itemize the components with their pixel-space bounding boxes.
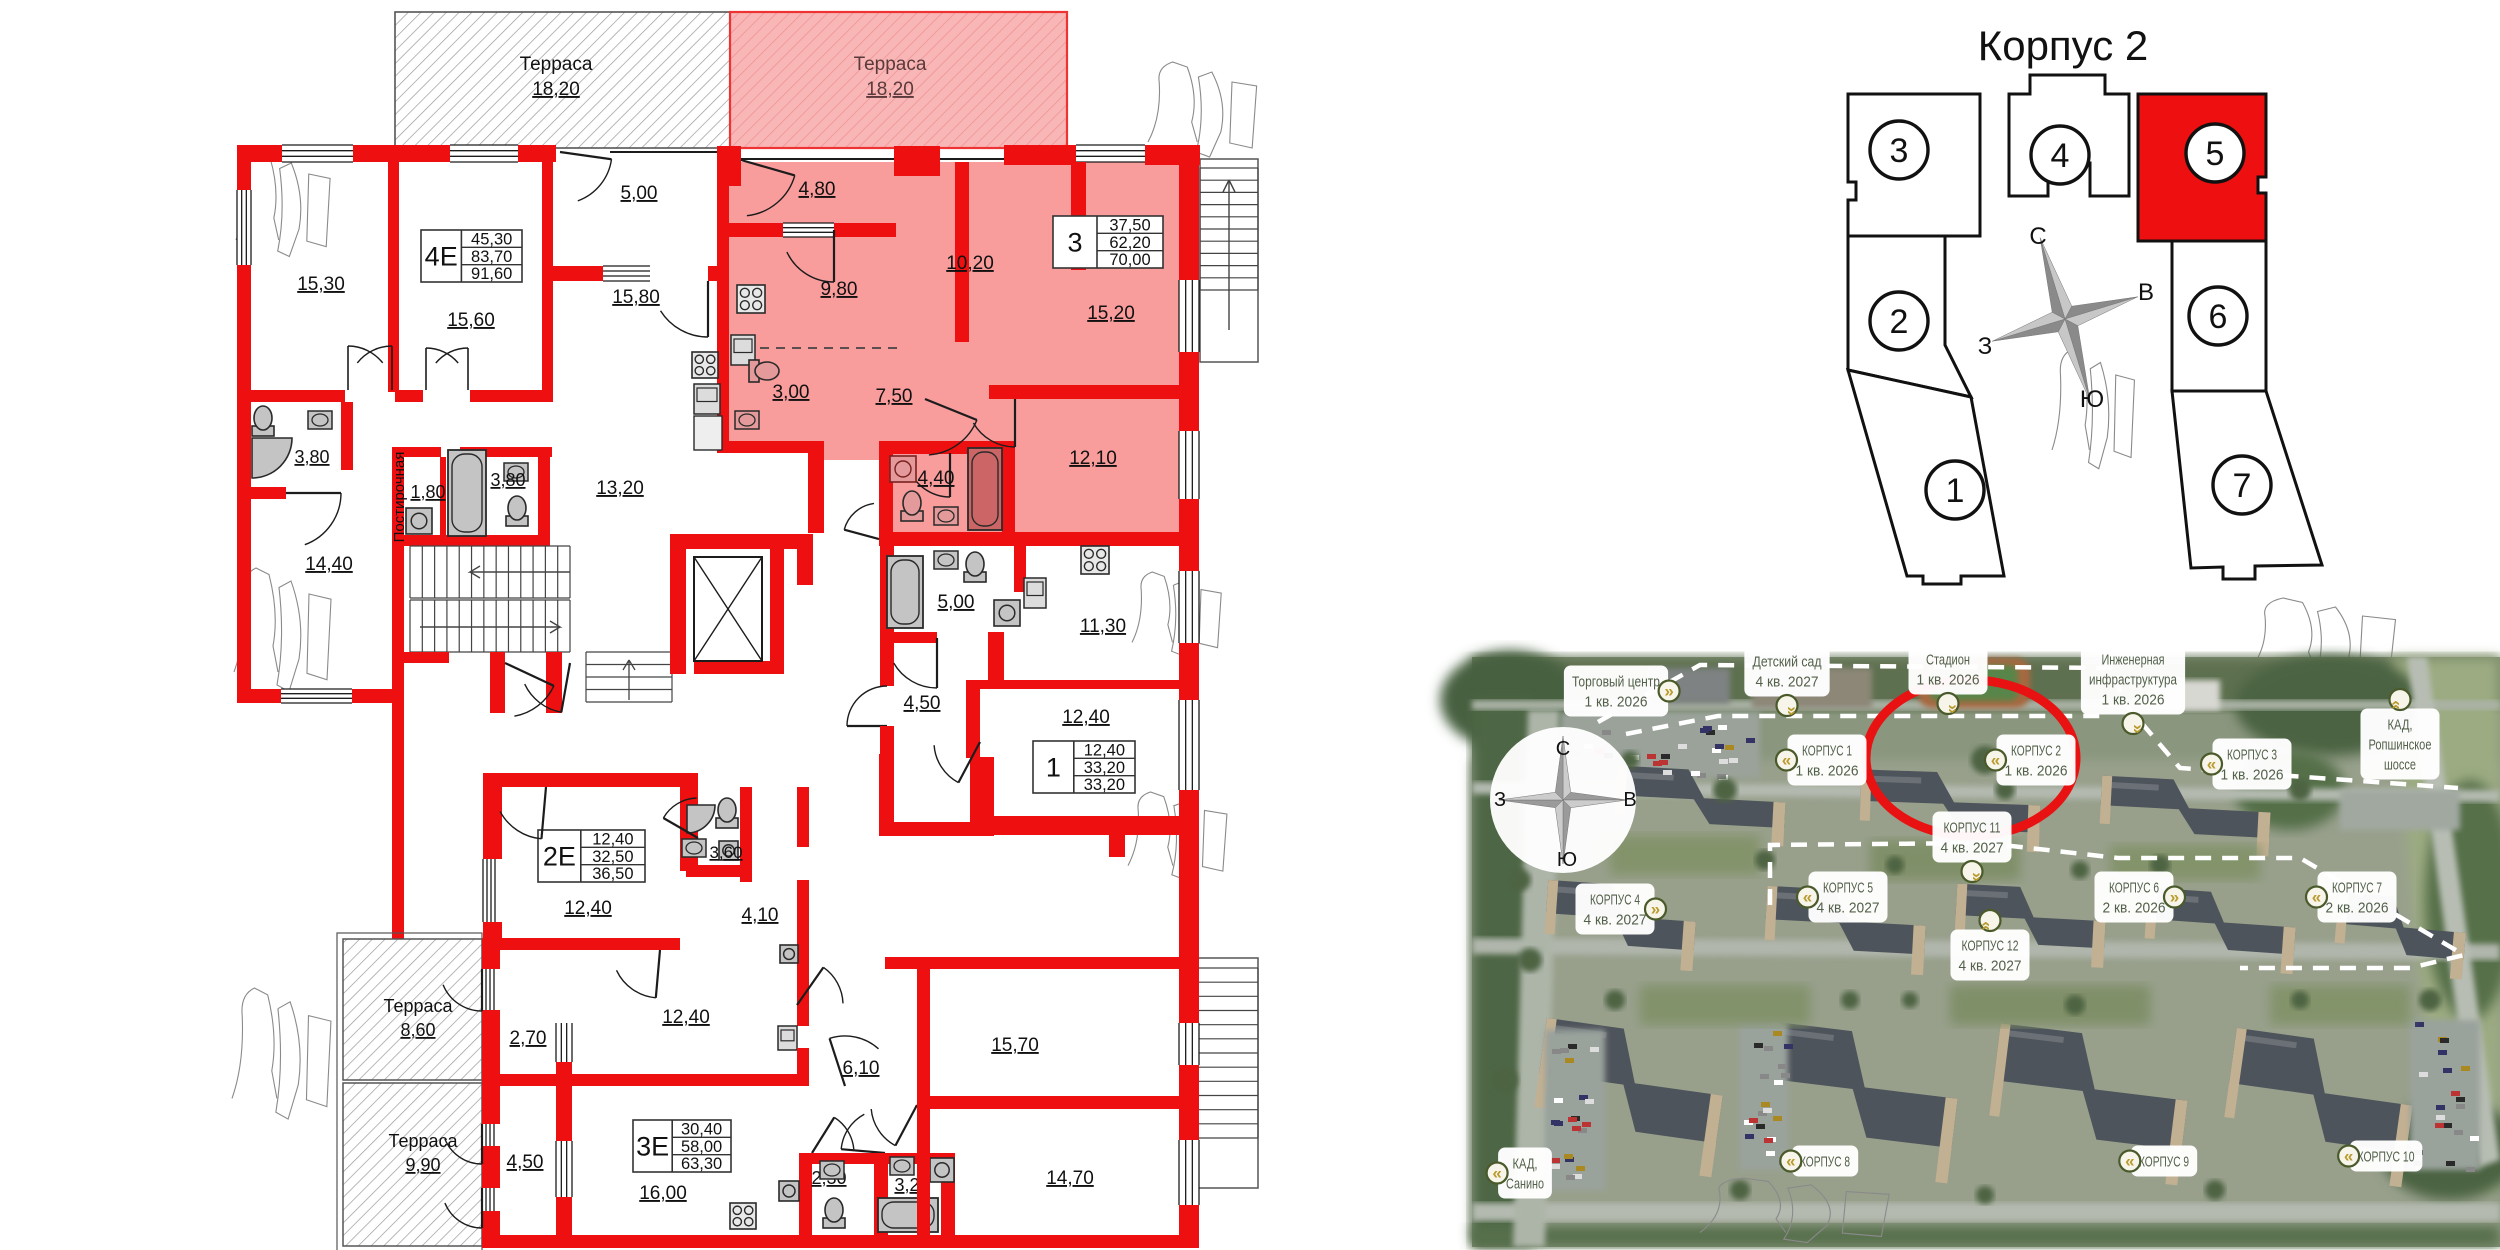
svg-text:Ю: Ю	[2080, 386, 2104, 413]
svg-text:1,80: 1,80	[410, 482, 445, 502]
svg-text:»: »	[2129, 724, 2148, 733]
svg-text:15,20: 15,20	[1087, 303, 1135, 324]
svg-text:»: »	[2385, 700, 2404, 709]
svg-text:»: »	[1664, 682, 1673, 701]
svg-text:4 кв. 2027: 4 кв. 2027	[1756, 674, 1819, 691]
svg-text:«: «	[1782, 751, 1791, 770]
svg-text:14,40: 14,40	[305, 554, 353, 575]
svg-text:КОРПУС 9: КОРПУС 9	[2139, 1154, 2189, 1171]
svg-text:36,50: 36,50	[592, 865, 633, 883]
svg-text:9,90: 9,90	[405, 1155, 440, 1175]
svg-text:Корпус 2: Корпус 2	[1978, 22, 2148, 69]
svg-text:33,20: 33,20	[1084, 776, 1125, 794]
svg-text:инфраструктура: инфраструктура	[2089, 672, 2177, 689]
svg-text:2Е: 2Е	[543, 841, 576, 871]
svg-text:»: »	[1975, 921, 1994, 930]
svg-text:15,60: 15,60	[447, 310, 495, 331]
svg-text:1 кв. 2026: 1 кв. 2026	[2102, 692, 2165, 709]
svg-text:В: В	[2138, 279, 2154, 306]
svg-text:КАД,: КАД,	[1513, 1156, 1538, 1173]
svg-text:«: «	[1786, 1152, 1795, 1171]
svg-text:32,50: 32,50	[592, 848, 633, 866]
svg-text:4 кв. 2027: 4 кв. 2027	[1941, 840, 2004, 857]
svg-text:Терраса: Терраса	[383, 996, 453, 1016]
svg-text:91,60: 91,60	[471, 265, 512, 283]
svg-text:«: «	[2312, 888, 2321, 907]
svg-text:«: «	[2125, 1152, 2134, 1171]
svg-text:«: «	[1492, 1164, 1501, 1183]
svg-text:12,40: 12,40	[564, 898, 612, 919]
svg-text:3: 3	[1890, 132, 1909, 170]
svg-text:КОРПУС 6: КОРПУС 6	[2109, 880, 2159, 897]
svg-text:КОРПУС 11: КОРПУС 11	[1944, 820, 2001, 837]
svg-text:«: «	[1991, 751, 2000, 770]
svg-text:8,60: 8,60	[400, 1020, 435, 1040]
svg-text:2 кв. 2026: 2 кв. 2026	[2326, 900, 2389, 917]
svg-text:2,70: 2,70	[510, 1028, 547, 1049]
svg-text:КОРПУС 12: КОРПУС 12	[1962, 938, 2019, 955]
svg-text:КОРПУС 10: КОРПУС 10	[2358, 1149, 2415, 1166]
svg-text:Ропшинское: Ропшинское	[2369, 737, 2432, 754]
svg-text:4 кв. 2027: 4 кв. 2027	[1959, 958, 2022, 975]
svg-text:С: С	[1556, 738, 1570, 760]
svg-text:11,30: 11,30	[1080, 616, 1126, 637]
svg-text:58,00: 58,00	[681, 1138, 722, 1156]
svg-text:КОРПУС 1: КОРПУС 1	[1802, 743, 1852, 760]
svg-text:9,80: 9,80	[821, 279, 858, 300]
svg-text:63,30: 63,30	[681, 1155, 722, 1173]
svg-text:7: 7	[2233, 467, 2252, 505]
svg-text:12,40: 12,40	[1062, 707, 1110, 728]
svg-text:Санино: Санино	[1506, 1176, 1544, 1193]
svg-text:3: 3	[1067, 227, 1082, 257]
svg-text:1 кв. 2026: 1 кв. 2026	[1585, 694, 1648, 711]
svg-text:14,70: 14,70	[1046, 1168, 1094, 1189]
svg-text:3,60: 3,60	[709, 843, 742, 862]
svg-text:13,20: 13,20	[596, 478, 644, 499]
svg-text:Ю: Ю	[1557, 849, 1577, 871]
svg-text:12,40: 12,40	[592, 830, 633, 848]
svg-text:Терраса: Терраса	[854, 54, 927, 75]
svg-text:Стадион: Стадион	[1926, 652, 1970, 669]
svg-text:КАД,: КАД,	[2388, 717, 2413, 734]
svg-text:«: «	[2344, 1147, 2353, 1166]
svg-text:16,00: 16,00	[639, 1183, 687, 1204]
svg-text:3,80: 3,80	[294, 447, 329, 467]
svg-text:12,10: 12,10	[1069, 448, 1117, 469]
svg-text:4,80: 4,80	[799, 179, 836, 200]
svg-text:45,30: 45,30	[471, 230, 512, 248]
svg-text:12,40: 12,40	[1084, 741, 1125, 759]
svg-text:1: 1	[1046, 752, 1061, 782]
svg-text:6: 6	[2209, 298, 2228, 336]
svg-text:Торговый центр: Торговый центр	[1572, 674, 1660, 691]
svg-text:З: З	[1978, 333, 1993, 360]
svg-text:Терраса: Терраса	[520, 54, 593, 75]
svg-text:6,10: 6,10	[843, 1058, 880, 1079]
svg-text:1 кв. 2026: 1 кв. 2026	[2005, 763, 2068, 780]
svg-text:2: 2	[1890, 303, 1909, 341]
svg-text:18,20: 18,20	[532, 79, 580, 100]
svg-text:33,20: 33,20	[1084, 759, 1125, 777]
svg-text:1 кв. 2026: 1 кв. 2026	[1796, 763, 1859, 780]
svg-text:КОРПУС 5: КОРПУС 5	[1823, 880, 1873, 897]
svg-text:7,50: 7,50	[876, 386, 913, 407]
svg-text:»: »	[2170, 888, 2179, 907]
svg-text:КОРПУС 4: КОРПУС 4	[1590, 892, 1640, 909]
svg-text:»: »	[1968, 872, 1987, 881]
svg-text:4,10: 4,10	[742, 905, 779, 926]
svg-text:3,80: 3,80	[490, 470, 525, 490]
svg-text:3,00: 3,00	[773, 382, 810, 403]
svg-text:шоссе: шоссе	[2384, 757, 2416, 774]
svg-text:4,50: 4,50	[507, 1152, 544, 1173]
svg-text:КОРПУС 8: КОРПУС 8	[1800, 1154, 1850, 1171]
svg-text:»: »	[1783, 706, 1802, 715]
svg-text:»: »	[1944, 704, 1963, 713]
svg-text:КОРПУС 2: КОРПУС 2	[2011, 743, 2061, 760]
svg-text:1 кв. 2026: 1 кв. 2026	[1917, 672, 1980, 689]
svg-text:КОРПУС 7: КОРПУС 7	[2332, 880, 2382, 897]
svg-text:Детский сад: Детский сад	[1753, 654, 1822, 671]
svg-text:Инженерная: Инженерная	[2102, 652, 2165, 669]
svg-text:4 кв. 2027: 4 кв. 2027	[1817, 900, 1880, 917]
svg-text:5,00: 5,00	[621, 183, 658, 204]
svg-text:Терраса: Терраса	[388, 1131, 458, 1151]
svg-text:83,70: 83,70	[471, 248, 512, 266]
svg-text:10,20: 10,20	[946, 253, 994, 274]
svg-text:30,40: 30,40	[681, 1120, 722, 1138]
svg-text:КОРПУС 3: КОРПУС 3	[2227, 747, 2277, 764]
svg-text:1 кв. 2026: 1 кв. 2026	[2221, 767, 2284, 784]
svg-text:5,00: 5,00	[938, 592, 975, 613]
svg-text:4Е: 4Е	[425, 241, 458, 271]
svg-text:37,50: 37,50	[1109, 216, 1150, 234]
svg-text:2 кв. 2026: 2 кв. 2026	[2103, 900, 2166, 917]
svg-text:15,70: 15,70	[991, 1035, 1039, 1056]
svg-text:18,20: 18,20	[866, 79, 914, 100]
svg-text:«: «	[2207, 755, 2216, 774]
svg-text:»: »	[1651, 900, 1660, 919]
svg-text:1: 1	[1946, 472, 1965, 510]
svg-text:3Е: 3Е	[636, 1131, 669, 1161]
svg-text:15,80: 15,80	[612, 287, 660, 308]
svg-text:12,40: 12,40	[662, 1007, 710, 1028]
svg-text:70,00: 70,00	[1109, 251, 1150, 269]
svg-text:З: З	[1494, 789, 1506, 811]
svg-text:4,40: 4,40	[918, 468, 955, 489]
svg-text:5: 5	[2206, 135, 2225, 173]
svg-text:62,20: 62,20	[1109, 234, 1150, 252]
svg-text:4: 4	[2051, 137, 2070, 175]
svg-text:«: «	[1803, 888, 1812, 907]
svg-text:В: В	[1623, 789, 1636, 811]
svg-text:С: С	[2029, 223, 2046, 250]
svg-text:4,50: 4,50	[904, 693, 941, 714]
svg-text:15,30: 15,30	[297, 274, 345, 295]
svg-text:4 кв. 2027: 4 кв. 2027	[1584, 912, 1647, 929]
